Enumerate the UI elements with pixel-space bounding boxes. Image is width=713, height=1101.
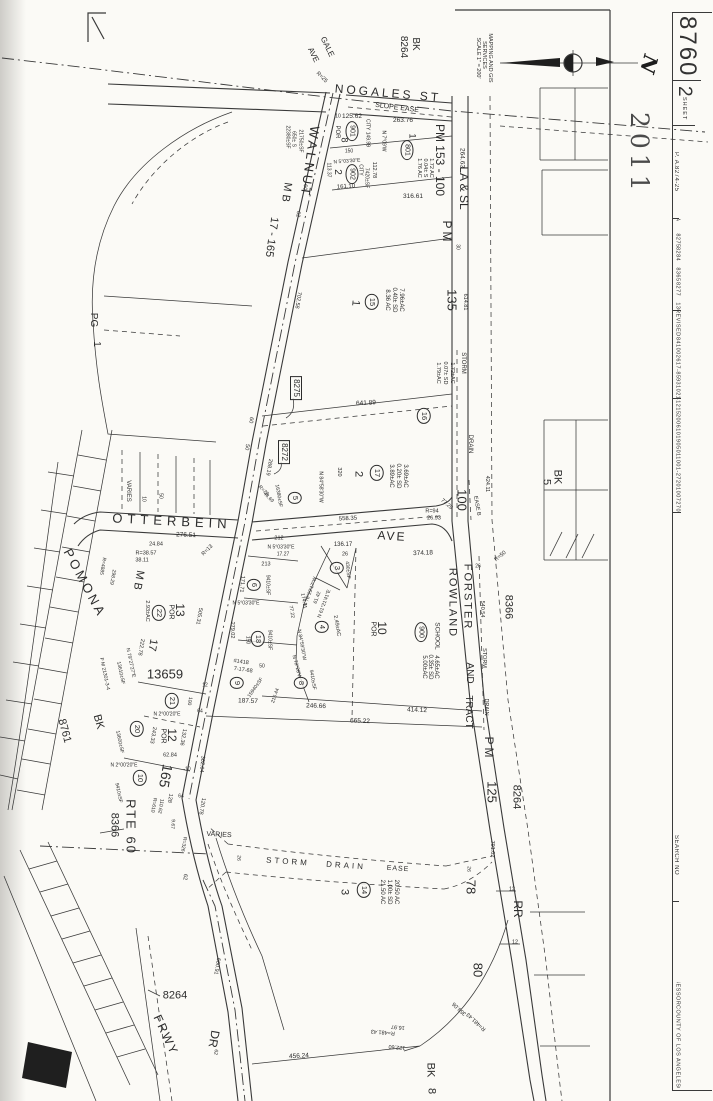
map-label: 50 [158,493,163,499]
label-otterbein: OTTERBEIN [112,511,232,530]
map-label: 424.11 [483,476,489,492]
map-label: 12 [202,684,208,689]
label-la-sl-railroad: LA & SL [458,166,470,209]
map-label: 26 [235,855,240,861]
label-8264-frwy: 8264 [163,991,187,1002]
parcel-4: 4 [315,621,329,633]
label-165: 165 [157,763,175,788]
label-mb-17-165: 17 - 165 [263,216,280,258]
parcel-14: 14 [357,882,371,898]
parcel-902: 902 [346,164,359,184]
map-label: 558.35 [339,516,358,523]
label-school: SCHOOL [433,622,440,649]
label-rte-60: RTE 60 [125,799,138,855]
map-label: 12 [512,940,518,946]
map-label: 171.71 [238,575,245,592]
parcel-map: NGALEAVEBK8264NOGALES STSLOPE EASEMAPPIN… [0,0,713,1101]
parcel-9: 9 [230,677,244,689]
map-label: 161.10 [337,183,356,190]
map-label: 60 [301,184,307,191]
map-label: R=13 [201,544,214,557]
map-label: N 5°03'30"E [233,602,260,607]
map-label: N 84°59'30"W [296,629,306,661]
map-label: 2.93±AC [143,600,149,621]
map-label: 9410±SF [308,670,316,691]
map-label: 540.54 [478,601,484,618]
map-label: 26.93 [427,516,441,522]
map-label: N 5°03'30"E [268,546,295,551]
map-label: SLOPE EASE [375,102,419,114]
revised-box: REVISED841002617-85931021 [673,311,681,399]
map-label: R=38.57 [136,551,157,557]
map-label: 430±SF [344,561,351,579]
map-label: 78 [465,880,478,894]
map-label: 174.71 [299,593,307,609]
parcel-15: 15 [365,294,379,310]
map-label: 26 [475,565,481,570]
map-label: 1.00± SD [386,880,392,905]
parcel-22: 22 [152,605,166,621]
label-nogales-st: NOGALES ST [334,82,441,103]
tract-8275: 8275 [290,376,302,400]
map-label: 9410±SF [265,575,270,595]
map-label: EASE B [472,496,481,517]
sheet-number: 2SHEET [673,81,695,126]
parcel-901: 901 [346,121,359,141]
map-label: 62 [294,211,300,218]
map-label: 246.66 [306,703,326,710]
map-label: 21750±SF [298,129,303,152]
map-label: 288.19 [264,458,272,476]
map-label: 10 [141,496,146,502]
label-rr: RR [512,900,524,917]
map-label: 60 [247,417,253,424]
label-bk-5: 5 [541,479,552,485]
label-bk-8: 8 [426,1088,437,1094]
map-label: 2 [332,169,342,175]
map-label: SERVICES [480,41,486,69]
map-label: 120.78 [197,797,205,815]
map-label: 665.22 [350,718,370,725]
map-label: 701.02 [488,841,494,858]
map-label: 614.81 [461,294,467,311]
label-otterbein-ave: AVE [377,529,407,543]
map-label: 150 [345,150,353,155]
map-label: DRAIN [482,698,488,715]
label-pm-100: 100 [456,489,469,511]
map-label: DRAIN [326,861,366,872]
map-label: F M 21301-3-4 [98,657,110,690]
map-label: POR [160,728,167,743]
label-pm-153-100: PM 153 - 100 [434,124,446,196]
pa-number: P. A.8274-25 [673,126,679,219]
parcel-10: 10 [133,770,147,786]
map-label: R=94 [425,509,438,515]
map-label: 1.72±AC [448,362,454,383]
map-label: 2 [353,471,364,477]
map-label: 26 [342,552,348,558]
map-label: N 7°09'W [381,130,386,151]
map-label: 316.61 [403,194,423,201]
map-label: 1 [408,133,417,138]
map-label: AVE [306,46,320,63]
map-label: 16380±SF [274,484,283,508]
map-label: 30 [455,244,460,250]
label-13659: 13659 [147,668,183,681]
map-label: N 2°00'20"E [111,764,138,769]
map-label: 222.78 [136,638,144,656]
parcel-20: 20 [130,721,144,737]
label-tract: TRACT [463,695,473,728]
map-label: 7.96±AC [398,288,404,311]
map-label: POR [370,621,377,636]
label-forster: FORSTER [462,564,473,631]
label-storm-drain-ease: STORM [266,856,310,867]
map-label: 2.49±AC [331,615,340,637]
map-label: BK [410,37,420,50]
map-label: 113.37 [326,163,331,178]
search-no-box: SEARCH NO [673,809,679,902]
map-label: 243.33 [148,726,156,744]
parcel-900-school: 900 [415,622,428,642]
map-label: 279.02 [228,622,234,639]
map-label: 1.79±AC [434,362,440,383]
map-label: 24.84 [149,542,163,548]
map-labels: NGALEAVEBK8264NOGALES STSLOPE EASEMAPPIN… [0,0,713,1101]
map-label: R=481.43 [466,1011,487,1031]
map-label: 505.31 [194,607,202,625]
map-label: M B [279,182,293,203]
label-dr: DR [207,1029,222,1048]
map-label: PG [88,313,98,327]
map-label: 122.60 [388,1043,405,1050]
map-label: 3 [339,889,350,895]
map-label: 660.91 [212,957,220,975]
map-label: 128 [165,793,172,803]
tract-8272: 8272 [278,440,290,464]
map-label: 132.36 [178,728,186,746]
label-pm-125: 125 [486,781,499,803]
map-label: 7-17-68 [233,667,253,675]
map-label: 64 [178,795,184,800]
map-label: VARIES [206,831,231,839]
map-label: 112.78 [370,162,376,178]
map-label: 3.89±AC [388,464,394,487]
parcel-16: 16 [417,408,431,424]
map-label: M B [131,569,145,590]
map-label: 1.76 AC [415,158,421,178]
map-label: 100 [186,696,192,705]
map-label: -10 [183,768,190,773]
map-label: 702.58 [293,291,301,309]
map-label: STORM [480,648,486,668]
map-label: 3.69±AC [402,464,408,487]
map-label: 362.04 [198,755,205,772]
map-label: 110.62 [156,798,164,814]
parcel-3: 3 [330,562,344,574]
map-label: STORM [460,352,466,374]
label-scale: SCALE 1" = 200' [474,37,480,78]
map-label: CITY 149.99 [365,119,370,147]
map-label: BK [552,470,563,485]
map-label: 13610±SF [115,661,125,685]
label-pm-135: 135 [446,289,459,311]
assessor-map-page: { "sidebar": { "book": ["8760"], "sheet"… [0,0,713,1101]
label-frwy: FRWY [151,1013,180,1057]
map-label: 1.72 AC [427,158,433,178]
map-book-number: 8760 [673,13,701,81]
map-label: 264.63 [458,148,465,168]
map-label: 13600±SF [114,730,124,754]
parcel-801: 801 [401,140,414,160]
map-label: 9410±SF [113,783,122,804]
map-label: 62.84 [163,753,177,759]
map-label: 0.20± SD [395,464,401,489]
map-label: 15940±SF [247,677,264,699]
map-label: 136.17 [334,542,352,548]
map-label: 276.51 [176,532,196,539]
map-label: 215.44 [271,688,281,704]
tra-table: TRA 82758284 83658277 13659 [673,219,681,311]
map-label: R=25 [314,71,327,84]
map-label: 50 [243,444,249,451]
map-label: 77.29 [439,498,453,511]
label-bk-8761: 8761 [56,718,73,744]
north-arrow-letter: N [637,53,661,76]
label-gale-ave: GALE [319,36,336,59]
parcel-18: 18 [251,631,265,647]
map-label: 187.57 [238,698,258,705]
title-block: 8760 2SHEET P. A.8274-25 TRA 82758284 83… [672,12,712,1091]
map-label: EASE [386,865,409,874]
map-label: 456.24 [289,1053,309,1061]
map-label: 20.50 AC [393,880,399,905]
map-label: R=326 [179,836,187,852]
map-label: 8264 [511,785,522,809]
map-label: 50 [259,665,265,670]
map-label: 8.36 AC [384,289,390,310]
map-label: 650± S [291,131,296,147]
map-label: N 79°27'27"E [124,648,135,678]
map-label: N 84°58'30"W [318,471,323,502]
revision-entries: 200412152006101905011001-272010072702-27 [673,399,681,513]
parcel-6: 6 [247,579,261,591]
map-label: VARIES [125,480,131,502]
map-label: 10 [335,115,341,120]
map-label: 212 [274,536,283,542]
map-label: 358.06 [452,1000,468,1015]
parcel-17: 17 [370,465,384,481]
map-label: 77.22 [287,605,294,618]
map-label: 17.27 [277,553,290,558]
map-label: 10 [376,621,388,634]
label-rowland: ROWLAND [447,568,458,638]
map-label: 16.97 [391,1023,405,1030]
map-label: 9.67 [169,819,175,829]
map-label: 213 [261,562,270,568]
map-label: 414.12 [407,707,427,714]
year-stamp: 2011 [618,112,654,196]
map-label: R=50 [494,551,508,564]
map-label: 1 [349,299,360,306]
map-label: 1 [91,341,101,347]
parcel-21: 21 [165,693,179,709]
map-label: AND [464,662,474,683]
map-label: 0.04± S [421,159,427,178]
map-label: 298.29 [108,569,116,585]
map-label: DRAIN [467,435,473,454]
map-label: 64 [197,710,203,715]
map-label: BK [91,713,105,730]
map-label: BK [425,1063,436,1078]
map-label: 22380±SF [285,125,290,148]
map-label: 9410±SF [267,630,272,650]
assessor-copyright: OFFICE OF THE ASSESSORCOUNTY OF LOS ANGE… [673,982,681,1088]
map-label: N 2°00'20"E [154,713,181,718]
label-bk-8366: 8366 [503,595,514,619]
map-label: R=4885 [98,557,106,575]
map-label: 48.69 [262,492,274,504]
map-label: 0.07± SD [441,362,447,385]
map-label: 12 [166,728,178,741]
parcel-8: 8 [294,677,308,689]
map-label: POR [168,604,175,619]
map-label: 62 [181,874,187,881]
map-label: 62 [212,1049,218,1055]
map-label: 17 [146,638,159,652]
map-label: 320 [335,467,341,476]
map-label: 26 [465,866,470,872]
parcel-5: 5 [288,492,302,504]
label-mapping-gis: MAPPING AND GIS [486,33,492,82]
map-label: 7420±SF [364,168,369,188]
map-label: 8366 [109,813,120,837]
map-label: 641.89 [356,400,376,408]
map-label: 4.65±AC [433,655,439,678]
map-label: 38.11 [135,558,148,564]
map-label: 150 [245,636,250,644]
map-label: 21.50 AC [379,880,385,905]
map-label: 263.76 [393,118,413,125]
map-label: 0.40± SD [391,288,397,313]
map-label: 12 [509,887,515,893]
label-bk-8264: 8264 [398,36,408,58]
map-label: 125.62 [342,114,362,121]
map-label: P M [441,220,453,241]
map-label: P M [483,736,495,757]
map-label: 374.18 [413,550,433,557]
map-label: 13 [174,603,186,616]
map-label: 80 [472,963,485,977]
